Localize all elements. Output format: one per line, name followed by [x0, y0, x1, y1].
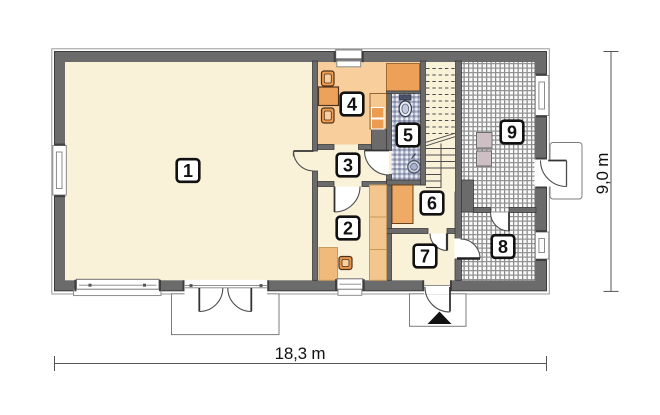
svg-text:9: 9 — [507, 123, 517, 143]
svg-text:9,0 m: 9,0 m — [593, 153, 612, 195]
svg-text:18,3 m: 18,3 m — [275, 344, 326, 363]
svg-text:5: 5 — [403, 126, 413, 146]
svg-text:6: 6 — [427, 194, 437, 214]
svg-text:3: 3 — [343, 156, 353, 176]
svg-text:2: 2 — [343, 219, 353, 239]
svg-text:8: 8 — [498, 237, 508, 257]
svg-text:1: 1 — [183, 161, 193, 181]
svg-text:7: 7 — [420, 247, 430, 267]
svg-text:4: 4 — [347, 95, 357, 115]
